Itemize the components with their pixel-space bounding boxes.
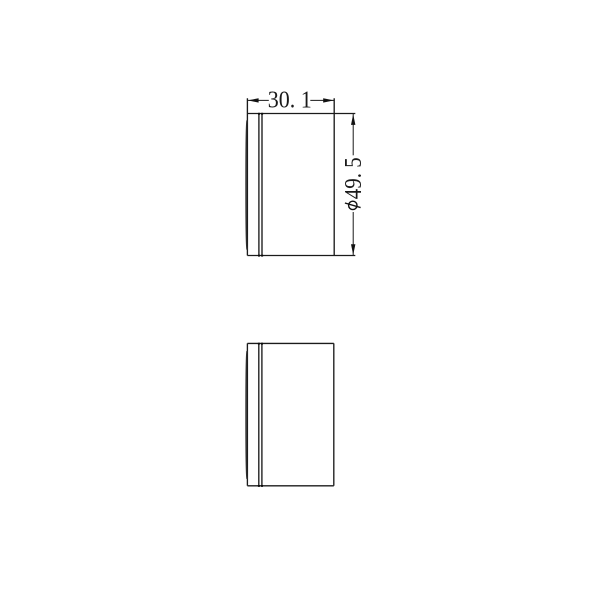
svg-text:49. 5: 49. 5	[341, 157, 367, 199]
svg-text:30. 1: 30. 1	[268, 88, 312, 114]
